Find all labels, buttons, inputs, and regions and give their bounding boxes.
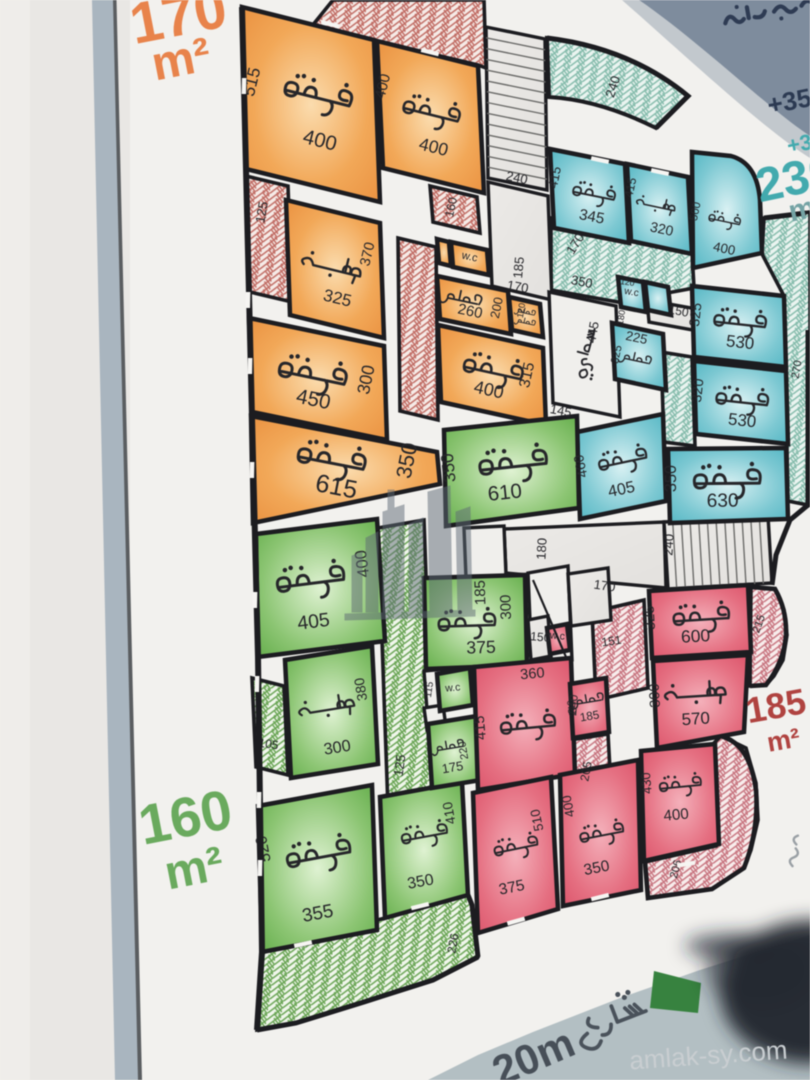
svg-text:570: 570 bbox=[681, 708, 711, 729]
svg-text:185: 185 bbox=[510, 256, 527, 279]
svg-text:375: 375 bbox=[466, 637, 496, 658]
svg-text:360: 360 bbox=[520, 665, 546, 683]
svg-text:320: 320 bbox=[689, 378, 707, 403]
svg-text:180: 180 bbox=[533, 538, 549, 560]
svg-text:415: 415 bbox=[472, 715, 490, 741]
svg-text:600: 600 bbox=[680, 625, 710, 647]
svg-text:m²: m² bbox=[147, 28, 215, 91]
svg-text:240: 240 bbox=[660, 534, 676, 556]
svg-text:325: 325 bbox=[641, 605, 658, 631]
svg-text:115: 115 bbox=[423, 681, 436, 699]
svg-text:400: 400 bbox=[663, 805, 690, 824]
svg-text:630: 630 bbox=[707, 491, 739, 512]
svg-text:300: 300 bbox=[646, 683, 663, 708]
svg-text:170: 170 bbox=[593, 577, 617, 595]
svg-text:240: 240 bbox=[565, 694, 581, 715]
svg-text:m²: m² bbox=[765, 722, 803, 757]
svg-text:530: 530 bbox=[727, 409, 757, 431]
svg-text:405: 405 bbox=[296, 609, 331, 635]
svg-text:+3: +3 bbox=[785, 129, 810, 158]
svg-text:185: 185 bbox=[472, 580, 490, 606]
svg-text:120: 120 bbox=[620, 276, 636, 288]
svg-text:350: 350 bbox=[662, 465, 680, 492]
svg-text:w.c: w.c bbox=[444, 681, 461, 694]
svg-text:300: 300 bbox=[497, 594, 515, 620]
svg-text:150: 150 bbox=[530, 629, 551, 645]
svg-text:151: 151 bbox=[601, 633, 623, 650]
svg-text:350: 350 bbox=[437, 452, 460, 483]
svg-text:m²: m² bbox=[160, 837, 228, 900]
svg-text:125: 125 bbox=[391, 754, 409, 778]
svg-text:610: 610 bbox=[487, 479, 523, 505]
svg-text:530: 530 bbox=[725, 331, 755, 353]
svg-text:430: 430 bbox=[638, 772, 655, 795]
